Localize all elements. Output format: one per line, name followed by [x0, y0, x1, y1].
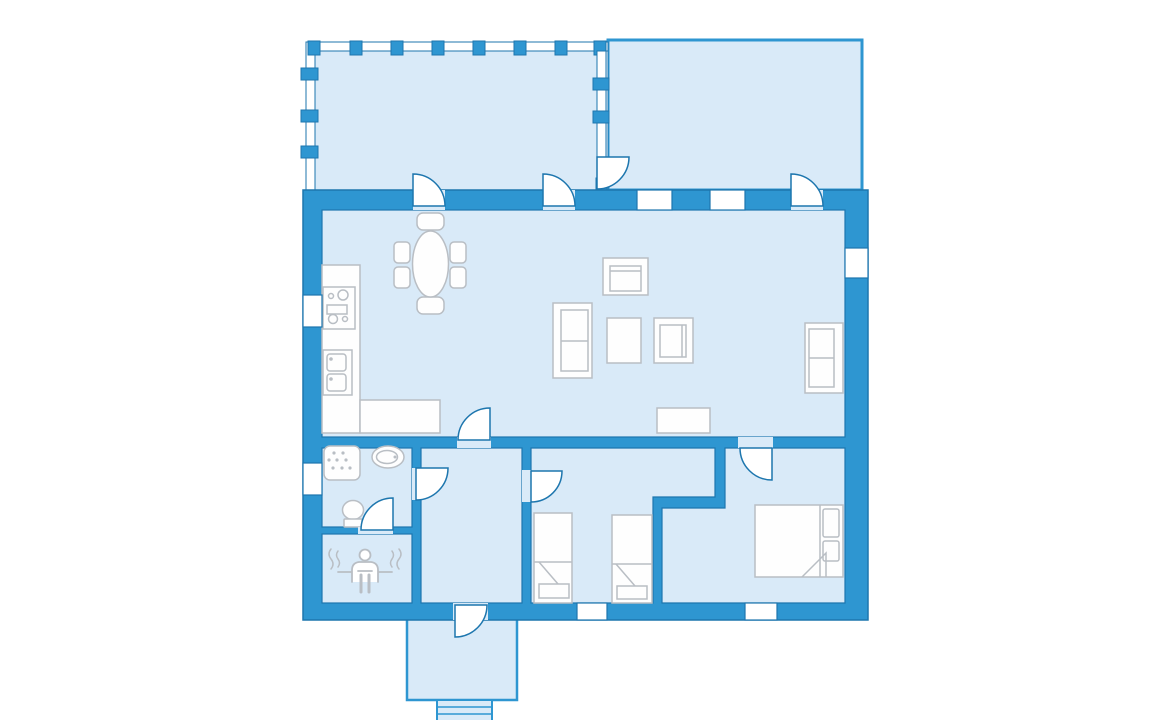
dining-chair [394, 267, 410, 288]
floor-plan-canvas [0, 0, 1152, 720]
porch-post [391, 41, 403, 55]
porch-post [350, 41, 362, 55]
armchair-right [654, 318, 693, 363]
bed-frame [612, 515, 652, 603]
armchair-top [603, 258, 648, 295]
toilet-tank [344, 519, 362, 527]
dining-table [413, 231, 449, 297]
porch-post [301, 110, 318, 122]
window-bedroom-right-south [745, 603, 777, 620]
gap-bedroom-middle [522, 470, 531, 502]
bather-head [360, 550, 371, 561]
shower [324, 446, 360, 480]
dining-chair [450, 267, 466, 288]
single-bed-2 [612, 515, 652, 603]
window-kitchen-west [303, 295, 322, 327]
kitchen-sink [323, 350, 352, 395]
coffee-table [607, 318, 641, 363]
window-terrace-wall-1 [637, 190, 672, 210]
porch-post [308, 41, 320, 55]
window-living-east [845, 248, 868, 278]
window-terrace-wall-2 [710, 190, 745, 210]
bather-body [352, 562, 378, 582]
dining-chair [417, 297, 444, 314]
dining-chair [394, 242, 410, 263]
washbasin [372, 446, 404, 468]
stove [323, 287, 355, 329]
terrace [608, 40, 862, 190]
floor-plan [0, 0, 1152, 720]
kitchen-counter-l [360, 400, 440, 433]
faucet [329, 377, 333, 381]
porch-terrace-divider [597, 51, 606, 157]
entrance-steps [437, 700, 492, 720]
double-bed [755, 505, 843, 577]
basin-drain [394, 456, 397, 459]
dining-chair [450, 242, 466, 263]
toilet [343, 501, 364, 528]
window-bedroom-middle-south [577, 603, 607, 620]
dining-chair [417, 213, 444, 230]
sideboard [657, 408, 710, 433]
shower-tray [324, 446, 360, 480]
porch-post [514, 41, 526, 55]
porch-post [301, 68, 318, 80]
porch-floor [306, 44, 608, 190]
porch-post [432, 41, 444, 55]
porch-post [555, 41, 567, 55]
sofa-east-wall [805, 323, 843, 393]
toilet-bowl [343, 501, 364, 520]
faucet [329, 357, 333, 361]
window-bathroom-west [303, 463, 322, 495]
single-bed-1 [534, 513, 572, 603]
porch-post [593, 78, 609, 90]
porch-post [473, 41, 485, 55]
gap-bedroom-right [738, 437, 773, 448]
sofa-left [553, 303, 592, 378]
porch-post [593, 111, 609, 123]
covered-porch [301, 41, 629, 191]
porch-post [301, 146, 318, 158]
